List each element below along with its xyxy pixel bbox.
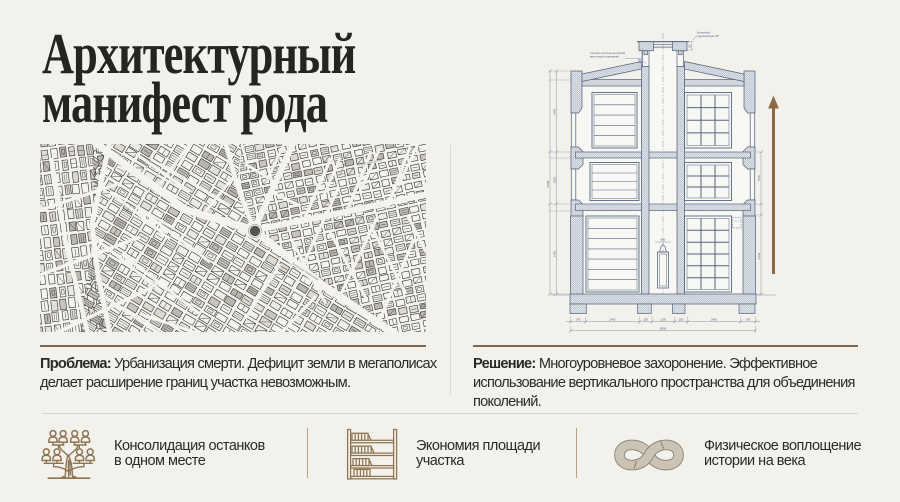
svg-text:1050: 1050 [552, 176, 556, 183]
svg-text:1450: 1450 [552, 108, 556, 115]
svg-text:200: 200 [679, 317, 684, 321]
svg-text:9800: 9800 [660, 326, 667, 330]
svg-text:2400: 2400 [610, 317, 616, 321]
svg-text:60: 60 [687, 44, 691, 47]
svg-text:5680: 5680 [546, 180, 550, 187]
svg-text:140: 140 [576, 317, 581, 321]
svg-text:140: 140 [746, 317, 751, 321]
svg-text:вентиляции помещений: вентиляции помещений [590, 54, 619, 58]
svg-text:200: 200 [644, 317, 649, 321]
svg-text:598: 598 [638, 58, 642, 63]
svg-text:2140: 2140 [757, 252, 761, 259]
svg-text:1650: 1650 [552, 250, 556, 257]
svg-text:гидроизоляции 45°: гидроизоляции 45° [697, 34, 720, 38]
svg-text:2400: 2400 [711, 317, 717, 321]
svg-text:800: 800 [661, 238, 666, 242]
svg-text:520: 520 [757, 175, 761, 180]
svg-text:1200: 1200 [660, 317, 666, 321]
